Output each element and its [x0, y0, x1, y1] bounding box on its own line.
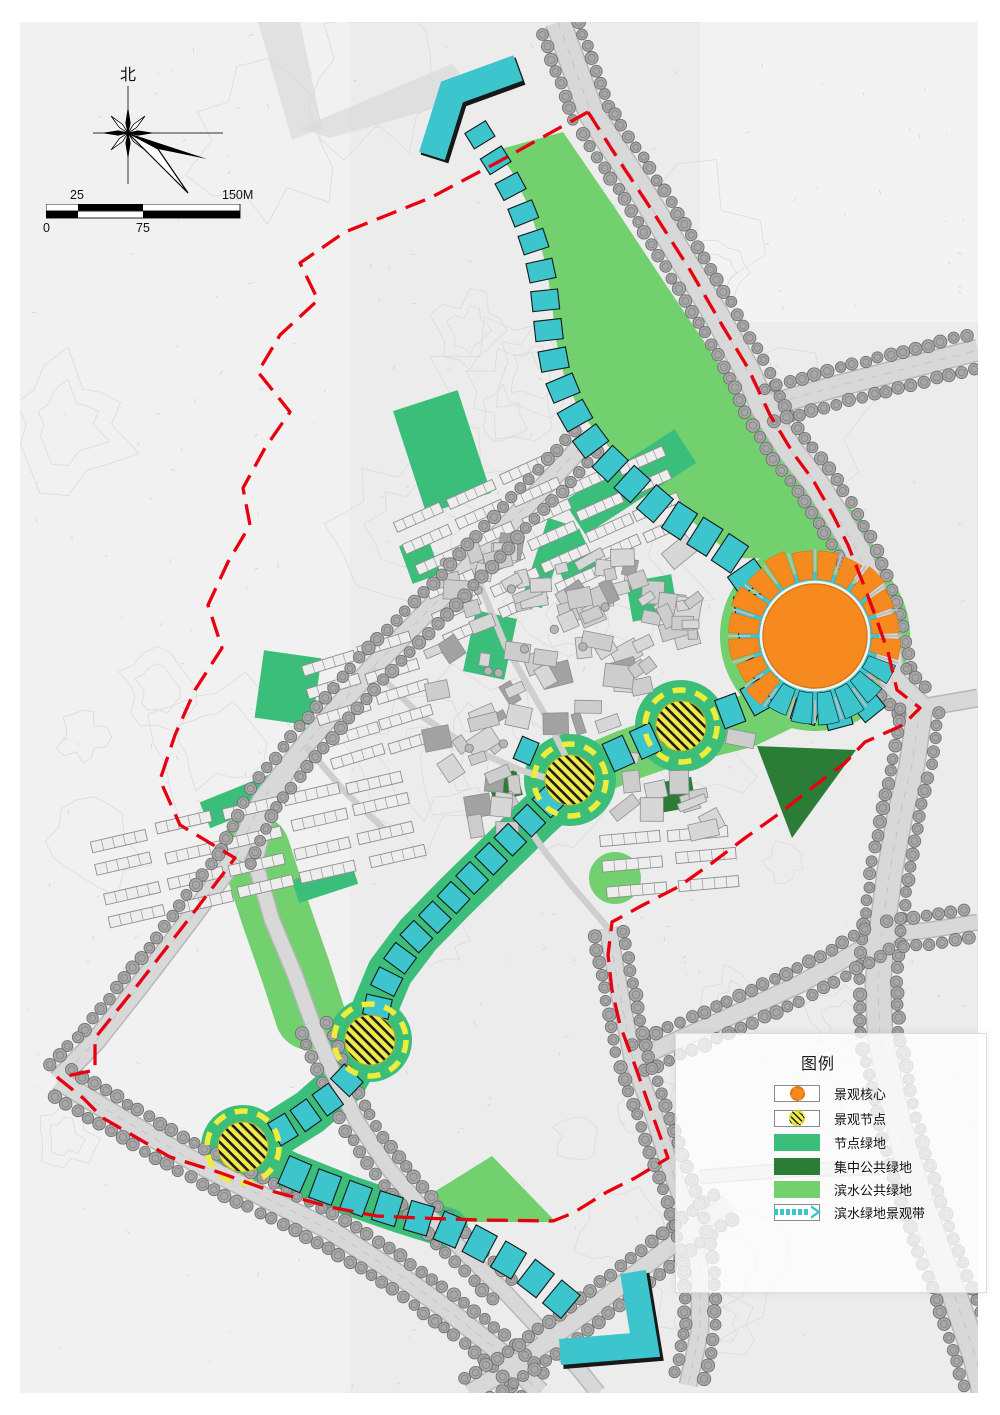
core-swatch-icon: [774, 1085, 820, 1102]
scale-label-0: 0: [43, 221, 50, 235]
node-swatch-icon: [774, 1110, 820, 1127]
belt-swatch-icon: [774, 1204, 820, 1221]
legend-title: 图例: [801, 1050, 835, 1074]
scale-bar: 25 150M 0 75: [46, 188, 266, 240]
legend-item-core: 景观核心: [774, 1084, 886, 1102]
legend-item-central-public-green: 集中公共绿地: [774, 1157, 912, 1175]
scale-label-25: 25: [70, 188, 84, 202]
site-plan-page: 北 25 150M 0 75 图例 景观核心 景观节点: [0, 0, 1000, 1415]
waterfront-green-swatch-icon: [774, 1181, 820, 1198]
scale-bar-graphic: [46, 204, 256, 222]
scale-label-75: 75: [136, 221, 150, 235]
scale-label-150m: 150M: [222, 188, 253, 202]
legend-item-waterfront-public-green: 滨水公共绿地: [774, 1180, 912, 1198]
legend-item-node-green: 节点绿地: [774, 1133, 886, 1151]
node-green-swatch-icon: [774, 1134, 820, 1151]
legend-item-node: 景观节点: [774, 1109, 886, 1127]
legend-item-waterfront-belt: 滨水绿地景观带: [774, 1203, 925, 1221]
central-green-swatch-icon: [774, 1158, 820, 1175]
north-label: 北: [120, 66, 136, 84]
legend-panel: 图例 景观核心 景观节点 节点绿地 集中公共绿地 滨水公共绿地 滨水绿地景观带: [675, 1033, 987, 1293]
